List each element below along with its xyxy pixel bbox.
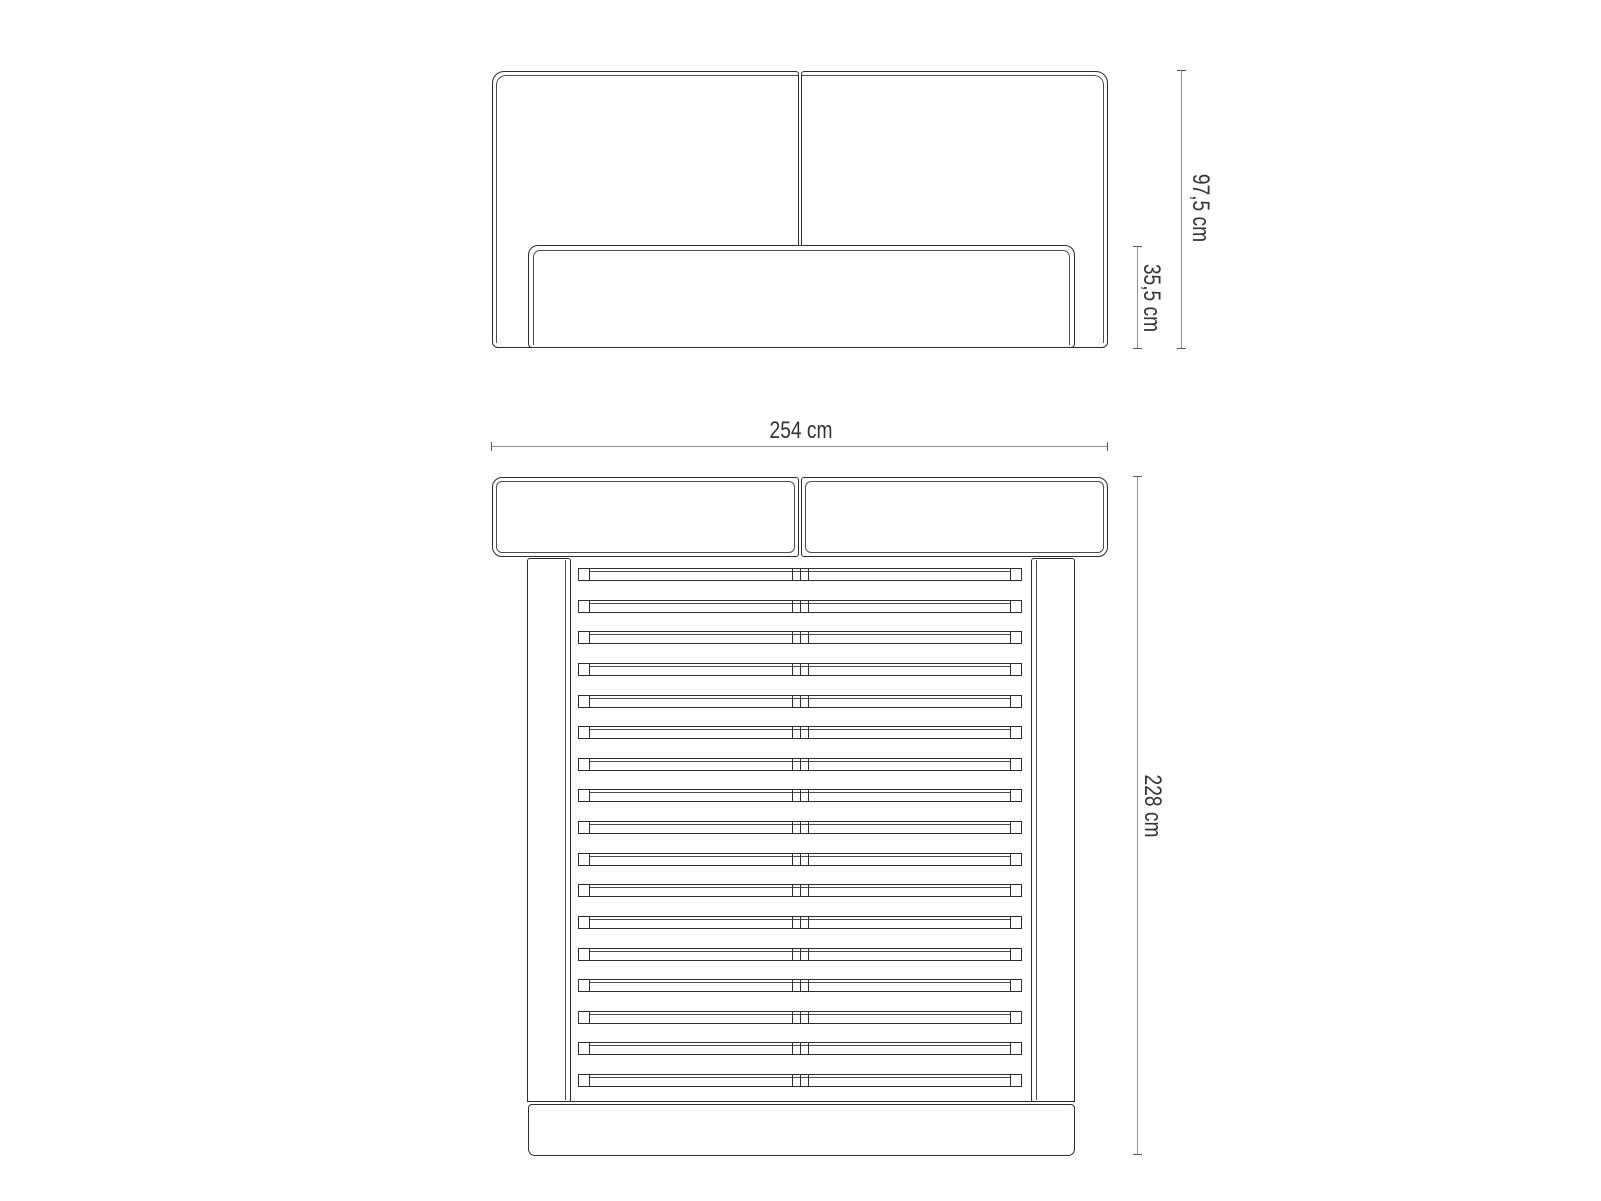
slat-right-cap xyxy=(1010,885,1011,896)
slat-center-joint-right xyxy=(808,632,809,643)
slat-center-joint-right xyxy=(808,822,809,833)
slat-center-joint xyxy=(800,1043,801,1054)
slat-right-cap xyxy=(1010,980,1011,991)
slat-center-joint-left xyxy=(792,601,793,612)
slat-center-joint-right xyxy=(808,980,809,991)
slat xyxy=(578,821,1022,834)
slat-center-joint-right xyxy=(808,1012,809,1023)
slat-center-joint-right xyxy=(808,601,809,612)
slat-right-cap xyxy=(1010,790,1011,801)
slat xyxy=(578,726,1022,739)
slat-center-joint-left xyxy=(792,854,793,865)
slat-left-cap xyxy=(589,822,590,833)
slat-center-joint xyxy=(800,949,801,960)
slat-center-joint-right xyxy=(808,664,809,675)
slat xyxy=(578,695,1022,708)
slat-right-cap xyxy=(1010,1012,1011,1023)
dim-label-depth: 228 cm xyxy=(1140,775,1164,838)
slat-right-cap xyxy=(1010,727,1011,738)
dim-end-tick xyxy=(1177,70,1186,71)
slat-center-joint xyxy=(800,917,801,928)
slat-center-joint xyxy=(800,980,801,991)
slat-center-joint xyxy=(800,822,801,833)
slat-center-joint xyxy=(800,664,801,675)
slat-right-cap xyxy=(1010,569,1011,580)
slat-left-cap xyxy=(589,885,590,896)
slat-center-joint xyxy=(800,569,801,580)
slat-left-cap xyxy=(589,632,590,643)
slat xyxy=(578,1011,1022,1024)
slat-center-joint-left xyxy=(792,1043,793,1054)
dim-end-tick xyxy=(1177,348,1186,349)
slat-left-cap xyxy=(589,949,590,960)
slat-center-joint-left xyxy=(792,664,793,675)
slat-right-cap xyxy=(1010,759,1011,770)
slat xyxy=(578,916,1022,929)
slat-center-joint-left xyxy=(792,1075,793,1086)
slat-center-joint xyxy=(800,790,801,801)
slat-center-joint-right xyxy=(808,949,809,960)
slat-center-joint-left xyxy=(792,790,793,801)
slat-left-cap xyxy=(589,727,590,738)
side-rail-left xyxy=(527,558,571,1102)
slat-right-cap xyxy=(1010,601,1011,612)
slat-left-cap xyxy=(589,601,590,612)
headboard-top-left-panel xyxy=(492,477,799,557)
dim-line-total-height xyxy=(1181,71,1182,348)
slat-center-joint-right xyxy=(808,696,809,707)
slat xyxy=(578,948,1022,961)
slat-center-joint-right xyxy=(808,790,809,801)
slat-center-joint-right xyxy=(808,917,809,928)
dim-end-tick xyxy=(1133,246,1142,247)
slat-right-cap xyxy=(1010,664,1011,675)
slat-left-cap xyxy=(589,790,590,801)
slat xyxy=(578,600,1022,613)
slat-left-cap xyxy=(589,759,590,770)
slat xyxy=(578,884,1022,897)
slat-left-cap xyxy=(589,1012,590,1023)
slat-center-joint xyxy=(800,854,801,865)
slat xyxy=(578,1074,1022,1087)
slat-center-joint-left xyxy=(792,632,793,643)
slat-center-joint-left xyxy=(792,1012,793,1023)
slat-left-cap xyxy=(589,1043,590,1054)
slat-center-joint xyxy=(800,759,801,770)
slat xyxy=(578,758,1022,771)
slat-center-joint-left xyxy=(792,696,793,707)
frame-bottom-line xyxy=(527,1101,1075,1102)
dim-end-tick xyxy=(1107,442,1108,451)
panel-inner-line xyxy=(496,481,795,553)
slat-center-joint-left xyxy=(792,917,793,928)
slat-center-joint-right xyxy=(808,1043,809,1054)
slat-center-joint xyxy=(800,1075,801,1086)
dim-line-depth xyxy=(1137,477,1138,1154)
footboard xyxy=(528,1104,1075,1156)
slat-right-cap xyxy=(1010,1075,1011,1086)
slat-center-joint xyxy=(800,1012,801,1023)
slat xyxy=(578,1042,1022,1055)
dim-line-width xyxy=(492,446,1108,447)
slat-right-cap xyxy=(1010,632,1011,643)
slat-center-joint-right xyxy=(808,727,809,738)
panel-inner-line xyxy=(805,481,1104,553)
slat-left-cap xyxy=(589,664,590,675)
slat-center-joint-right xyxy=(808,759,809,770)
dim-end-tick xyxy=(491,442,492,451)
slat-left-cap xyxy=(589,1075,590,1086)
slat-right-cap xyxy=(1010,917,1011,928)
slat-center-joint xyxy=(800,632,801,643)
slat-left-cap xyxy=(589,569,590,580)
panel-inner-line xyxy=(533,250,1070,345)
slat-right-cap xyxy=(1010,822,1011,833)
slat-center-joint-right xyxy=(808,854,809,865)
dim-label-total-height: 97,5 cm xyxy=(1188,174,1212,242)
slat-center-joint-left xyxy=(792,759,793,770)
slat xyxy=(578,979,1022,992)
slat xyxy=(578,789,1022,802)
dim-end-tick xyxy=(1133,476,1142,477)
slat-center-joint-left xyxy=(792,980,793,991)
side-rail-right xyxy=(1031,558,1075,1102)
dim-label-base-height: 35,5 cm xyxy=(1139,264,1163,332)
slat-center-joint-left xyxy=(792,822,793,833)
bed-dimension-drawing: 97,5 cm 35,5 cm 254 cm 228 cm xyxy=(0,0,1601,1201)
slat-left-cap xyxy=(589,917,590,928)
slat-right-cap xyxy=(1010,1043,1011,1054)
slat-right-cap xyxy=(1010,696,1011,707)
headboard-top-right-panel xyxy=(801,477,1108,557)
slat-center-joint-left xyxy=(792,885,793,896)
slat-center-joint-right xyxy=(808,885,809,896)
slat-center-joint-left xyxy=(792,569,793,580)
slat xyxy=(578,568,1022,581)
dim-label-width: 254 cm xyxy=(770,419,833,443)
slat xyxy=(578,631,1022,644)
rail-inner-line xyxy=(565,560,566,1100)
slat-right-cap xyxy=(1010,854,1011,865)
slat-left-cap xyxy=(589,696,590,707)
slat-center-joint xyxy=(800,696,801,707)
slat-center-joint xyxy=(800,727,801,738)
slat-right-cap xyxy=(1010,949,1011,960)
slat-left-cap xyxy=(589,980,590,991)
dim-end-tick xyxy=(1133,1154,1142,1155)
slat-center-joint-right xyxy=(808,1075,809,1086)
slat xyxy=(578,853,1022,866)
dim-end-tick xyxy=(1133,348,1142,349)
slat-center-joint xyxy=(800,885,801,896)
slat-center-joint-right xyxy=(808,569,809,580)
slat xyxy=(578,663,1022,676)
slat-left-cap xyxy=(589,854,590,865)
slat-center-joint-left xyxy=(792,727,793,738)
slat-center-joint xyxy=(800,601,801,612)
bed-base-front-panel xyxy=(528,245,1075,348)
rail-inner-line xyxy=(1036,560,1037,1100)
slat-center-joint-left xyxy=(792,949,793,960)
